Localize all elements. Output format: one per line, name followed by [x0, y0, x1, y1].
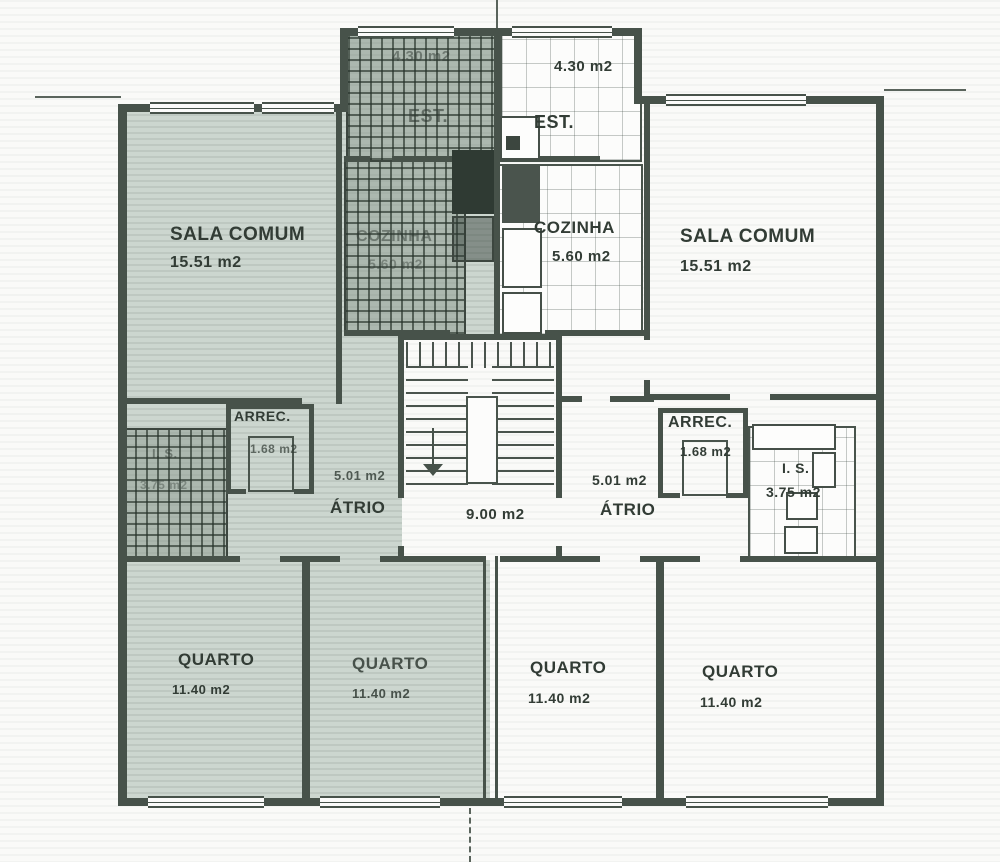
floor-plan-sheet: SALA COMUM 15.51 m2 COZINHA 5.60 m2 4.30… [0, 0, 1000, 862]
window-quarto2 [320, 796, 440, 808]
wall-atrio-right-north-a [562, 396, 582, 402]
stair-flight-top [406, 342, 554, 368]
atrio-right-label: ÁTRIO [600, 500, 655, 520]
wall-arrec-right-n [658, 408, 748, 413]
bathtub-right [752, 424, 836, 450]
arrec-right-label: ARREC. [668, 414, 732, 432]
wall-party-top [494, 28, 500, 338]
wall-stair-north [398, 334, 562, 340]
wall-corridor-right-b [640, 556, 700, 562]
atrio-right-area: 5.01 m2 [592, 472, 647, 488]
cozinha-left-hatch [344, 160, 466, 336]
cozinha-right-area: 5.60 m2 [552, 248, 611, 265]
window-quarto3 [504, 796, 622, 808]
bidet-right [784, 526, 818, 554]
wall-arrec-left-s1 [226, 489, 246, 494]
wall-sala-right-south-a [650, 394, 730, 400]
atrio-left-area: 5.01 m2 [334, 468, 385, 483]
wall-arrec-left-s2 [294, 489, 314, 494]
window-sala-left-1 [150, 102, 254, 114]
cozinha-left-label: COZINHA [356, 228, 432, 246]
wall-arrec-right-s2 [726, 493, 748, 498]
sala-right-label: SALA COMUM [680, 226, 815, 248]
est-left-area: 4.30 m2 [392, 48, 451, 65]
arrec-left-label: ARREC. [234, 408, 291, 424]
stair-landing-area: 9.00 m2 [466, 506, 525, 523]
is-left-label: I. S. [152, 446, 178, 461]
wall-sala-right-south-b [770, 394, 884, 400]
window-sala-left-2 [262, 102, 334, 114]
counter-left-mid [452, 216, 494, 262]
is-right-area: 3.75 m2 [766, 484, 821, 500]
wall-corridor-left-b [280, 556, 340, 562]
wall-cozinha-right-south [545, 330, 644, 336]
wall-quarto3-quarto4 [656, 562, 664, 798]
cozinha-left-area: 5.60 m2 [368, 256, 423, 272]
quarto3-area: 11.40 m2 [528, 690, 590, 706]
wall-sala-left-east [336, 112, 342, 404]
wall-party-bottom-a [483, 556, 486, 802]
ref-line-bottom-center [469, 808, 471, 862]
is-right-label: I. S. [782, 460, 809, 476]
wall-est-right [634, 28, 642, 104]
stair-shaft [466, 396, 498, 484]
quarto2-area: 11.40 m2 [352, 686, 410, 701]
ref-line-right [884, 89, 966, 91]
water-heater-right-inner [506, 136, 520, 150]
stove-right [502, 165, 540, 223]
wall-landing-south-right [500, 556, 562, 562]
est-right-label: EST. [534, 112, 574, 133]
window-quarto1 [148, 796, 264, 808]
quarto3-label: QUARTO [530, 658, 606, 678]
sala-left-label: SALA COMUM [170, 224, 305, 246]
wall-corridor-right-c [740, 556, 884, 562]
atrio-left-label: ÁTRIO [330, 498, 385, 518]
quarto1-area: 11.40 m2 [172, 682, 230, 697]
wall-stair-east-a [556, 336, 562, 498]
sink-right [812, 452, 836, 488]
quarto4-area: 11.40 m2 [700, 694, 762, 710]
stair-flight-right [492, 366, 554, 488]
wall-corridor-left-c [380, 556, 404, 562]
sala-right-area: 15.51 m2 [680, 258, 752, 276]
wall-est-cozinha-left-a [344, 156, 370, 162]
counter-right-b [502, 292, 542, 334]
wall-quarto1-quarto2 [302, 562, 310, 798]
wall-right [876, 96, 884, 806]
wall-arrec-right-w [658, 408, 663, 498]
wall-landing-south-left [404, 556, 484, 562]
counter-left-dark [452, 150, 494, 214]
window-est-left [358, 26, 454, 38]
sala-left-area: 15.51 m2 [170, 254, 242, 272]
est-left-label: EST. [408, 106, 448, 127]
wall-atrio-right-north-b [610, 396, 654, 402]
window-quarto4 [686, 796, 828, 808]
wall-stair-west-a [398, 336, 404, 498]
est-right-area: 4.30 m2 [554, 58, 613, 75]
wall-corridor-right-a [562, 556, 600, 562]
wall-arrec-right-s1 [658, 493, 680, 498]
stair-arrow-head-icon [423, 464, 443, 476]
quarto1-label: QUARTO [178, 650, 254, 670]
wall-party-bottom-b [495, 556, 498, 802]
is-left-area: 3.75 m2 [140, 478, 188, 492]
arrec-left-area: 1.68 m2 [250, 442, 298, 456]
wall-sala-right-west-a [644, 104, 650, 340]
wall-est-left [340, 28, 348, 112]
wall-arrec-left-e [309, 404, 314, 494]
wall-corridor-left-a [126, 556, 240, 562]
quarto2-label: QUARTO [352, 654, 428, 674]
window-est-right [512, 26, 612, 38]
wall-left [118, 104, 127, 806]
arrec-right-area: 1.68 m2 [680, 444, 731, 459]
wall-arrec-right-e [743, 408, 748, 498]
ref-line-top-center [496, 0, 498, 30]
cozinha-right-label: COZINHA [534, 218, 615, 238]
quarto4-label: QUARTO [702, 662, 778, 682]
wall-arrec-left-w [226, 404, 231, 494]
window-sala-right [666, 94, 806, 106]
stair-arrow-stem [432, 428, 434, 466]
ref-line-left [35, 96, 121, 98]
